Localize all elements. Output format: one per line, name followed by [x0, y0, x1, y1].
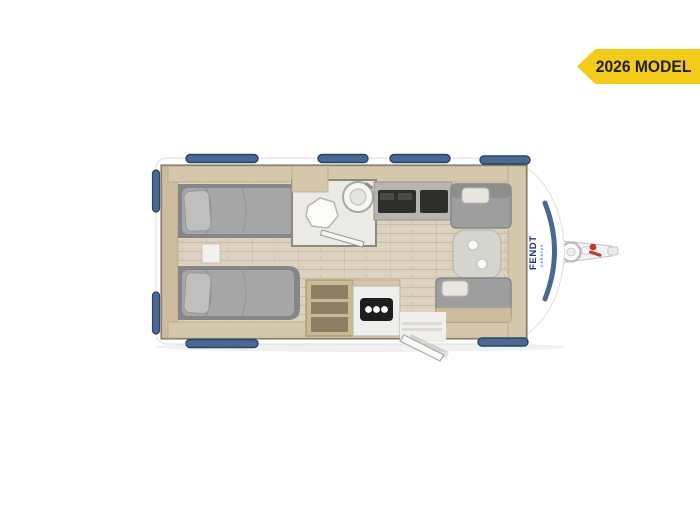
- model-year-label: 2026 MODEL: [586, 57, 691, 77]
- pillow-icon: [184, 190, 212, 232]
- caravan-floorplan: FENDT CARAVAN: [146, 144, 628, 384]
- twin-bed-top: [178, 184, 300, 238]
- entry: [400, 312, 449, 361]
- wardrobe: [292, 166, 328, 192]
- kitchen-hob-unit: [353, 280, 400, 336]
- window-icon: [153, 292, 160, 334]
- brand-name: FENDT: [528, 235, 539, 270]
- cushion-icon: [462, 188, 489, 203]
- window-icon: [390, 155, 450, 163]
- window-icon: [478, 338, 528, 346]
- dinette-table: [453, 230, 501, 278]
- window-icon: [480, 156, 530, 164]
- model-year-badge: 2026 MODEL: [577, 49, 700, 84]
- brand-sub: CARAVAN: [540, 243, 544, 267]
- pillow-icon: [184, 272, 212, 314]
- window-icon: [153, 170, 160, 212]
- twin-bed-bottom: [178, 266, 300, 320]
- product-image: 2026 MODEL: [0, 0, 700, 525]
- window-icon: [186, 155, 258, 163]
- kitchen-shelf-unit: [306, 280, 353, 336]
- cushion-icon: [442, 281, 468, 296]
- kitchen-counter: [374, 182, 452, 220]
- window-icon: [186, 340, 258, 348]
- bedside-step: [202, 244, 220, 263]
- window-icon: [318, 155, 368, 163]
